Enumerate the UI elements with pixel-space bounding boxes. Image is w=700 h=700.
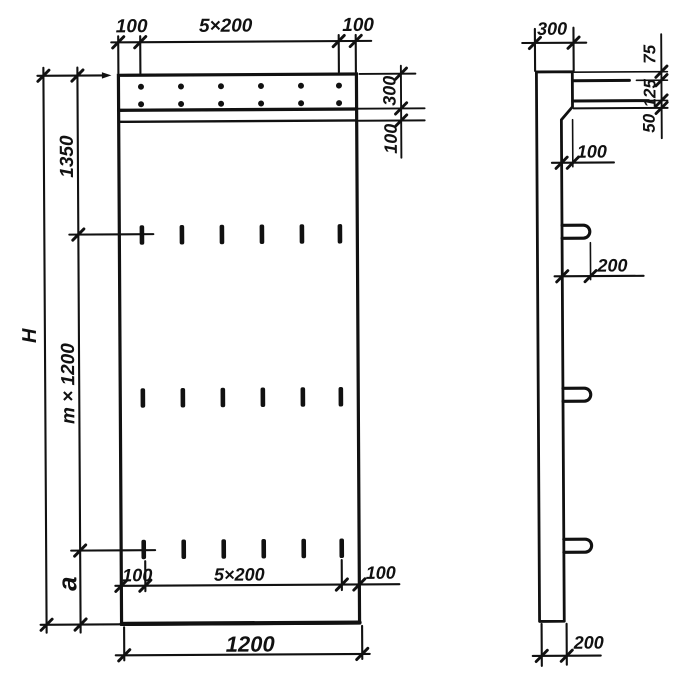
svg-text:100: 100 — [342, 15, 374, 36]
svg-text:300: 300 — [379, 76, 399, 106]
svg-text:200: 200 — [596, 255, 627, 275]
svg-text:100: 100 — [116, 16, 148, 37]
svg-text:50: 50 — [640, 113, 659, 133]
svg-text:5×200: 5×200 — [214, 565, 265, 585]
svg-text:300: 300 — [537, 19, 567, 39]
svg-text:1350: 1350 — [57, 135, 78, 178]
svg-text:5×200: 5×200 — [199, 16, 253, 37]
svg-text:100: 100 — [122, 565, 152, 585]
svg-text:75: 75 — [640, 44, 659, 64]
svg-text:100: 100 — [366, 563, 396, 583]
svg-text:a: a — [52, 576, 82, 591]
svg-text:125: 125 — [640, 78, 659, 107]
svg-text:H: H — [19, 328, 41, 343]
svg-text:200: 200 — [573, 633, 604, 653]
svg-text:1200: 1200 — [226, 631, 276, 656]
svg-text:100: 100 — [577, 142, 607, 162]
svg-text:m × 1200: m × 1200 — [58, 343, 79, 424]
svg-text:100: 100 — [381, 124, 401, 154]
